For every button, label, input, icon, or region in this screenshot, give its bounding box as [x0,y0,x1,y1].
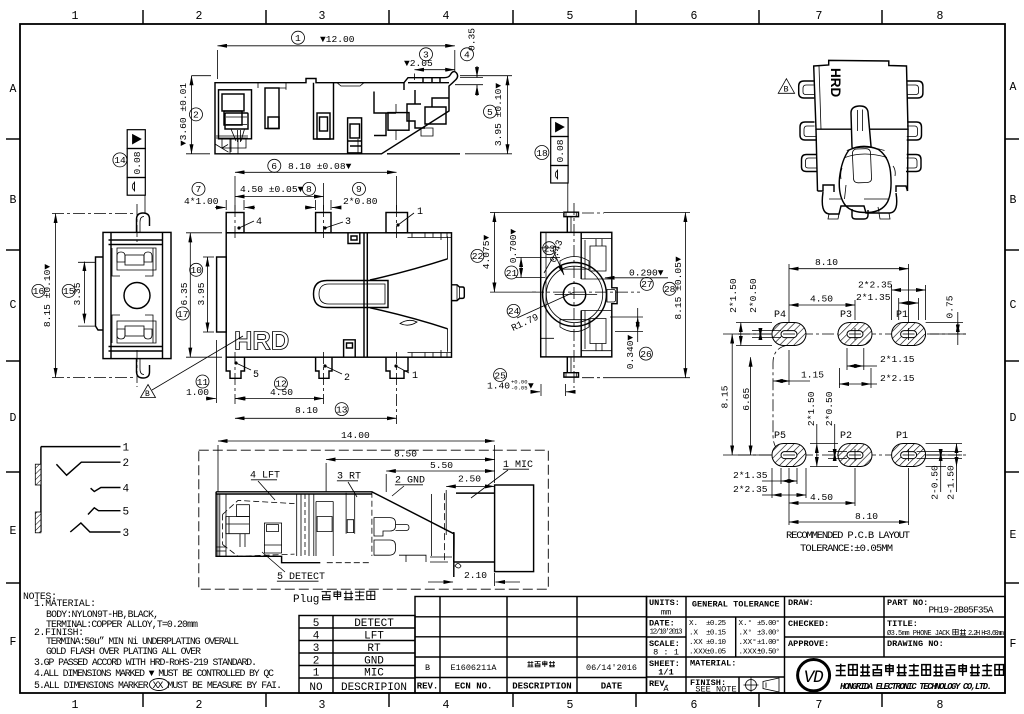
svg-text:TITLE:: TITLE: [887,619,918,629]
svg-text:1.15: 1.15 [801,370,824,381]
svg-text:0.700▼: 0.700▼ [508,228,519,263]
svg-text:17: 17 [177,309,189,320]
svg-text:8: 8 [937,10,944,23]
svg-text:APPROVE:: APPROVE: [788,639,829,649]
svg-text:±0.10: ±0.10 [706,639,726,647]
svg-text:DRAWING NO:: DRAWING NO: [887,639,944,649]
svg-text:LFT: LFT [364,630,384,642]
svg-text:E: E [10,525,17,538]
svg-text:2*0.80: 2*0.80 [343,196,378,207]
svg-text:8.50: 8.50 [394,449,417,460]
svg-text:5: 5 [253,370,259,381]
svg-text:5.ALL DIMENSIONS MARKER XX M: 5.ALL DIMENSIONS MARKER XX MUST BE MEASU… [34,680,282,691]
svg-text:▼2.05: ▼2.05 [404,58,433,69]
svg-text:8.15: 8.15 [720,385,731,408]
svg-text:0.75: 0.75 [945,295,956,318]
svg-text:.X°: .X° [739,629,753,638]
svg-text:mm: mm [661,608,671,618]
svg-text:1: 1 [417,207,423,218]
svg-text:1: 1 [295,33,301,44]
svg-text:Plug: Plug [293,594,319,606]
svg-text:▼3.60 ±0.01: ▼3.60 ±0.01 [178,83,189,147]
svg-text:A: A [1010,81,1017,94]
svg-text:UNITS:: UNITS: [649,598,680,608]
svg-text:P3: P3 [840,310,852,321]
svg-text:2: 2 [196,699,203,712]
svg-text:MIC: MIC [364,667,384,679]
svg-text:4: 4 [256,217,262,228]
svg-text:0.08: 0.08 [132,151,143,174]
svg-text:±1.00°: ±1.00° [757,638,780,647]
svg-text:2*0.50: 2*0.50 [824,391,835,426]
svg-text:B: B [10,194,17,207]
svg-text:14: 14 [114,155,126,166]
svg-text:5.50: 5.50 [430,460,453,471]
svg-text:±5.00°: ±5.00° [757,619,780,628]
svg-text:VD: VD [804,668,824,688]
svg-text:P5: P5 [774,431,786,442]
svg-text:8.10 ±0.08▼: 8.10 ±0.08▼ [288,161,352,172]
svg-text:0.340▼: 0.340▼ [625,334,636,369]
svg-text:18: 18 [536,148,548,159]
svg-text:P1: P1 [896,310,908,321]
svg-text:2*0.50: 2*0.50 [748,278,759,313]
svg-text:4.50: 4.50 [810,492,833,503]
svg-text:2: 2 [196,10,203,23]
svg-text:3: 3 [123,528,130,540]
svg-text:DATE:: DATE: [649,619,675,629]
svg-text:2.2H H=3.60mm: 2.2H H=3.60mm [968,630,1004,638]
svg-text:Ø3.5mm PHONE JACK: Ø3.5mm PHONE JACK [887,629,951,638]
svg-text:±0.25: ±0.25 [706,620,726,628]
svg-text:24: 24 [508,306,520,317]
svg-text:26: 26 [640,349,652,360]
svg-text:DRAW:: DRAW: [788,598,814,608]
svg-text:1: 1 [313,667,320,679]
svg-text:D: D [10,412,17,425]
svg-text:2.10: 2.10 [464,570,487,581]
svg-text:1: 1 [72,10,79,23]
svg-text:8.15 ±0.05▼: 8.15 ±0.05▼ [673,256,684,320]
svg-text:7: 7 [816,10,823,23]
svg-text:3.GP PASSED ACCORD WITH HRD-Ro: 3.GP PASSED ACCORD WITH HRD-RoHS-219 STA… [34,657,257,668]
svg-text:X.: X. [689,620,698,628]
svg-text:X.°: X.° [739,619,753,628]
svg-text:0.08: 0.08 [555,139,566,162]
svg-text:DESCRIPTION: DESCRIPTION [512,682,571,692]
svg-text:4.50 ±0.05▼: 4.50 ±0.05▼ [240,184,304,195]
svg-text:HONGRIDA ELECTRONIC TECHNOLOGY: HONGRIDA ELECTRONIC TECHNOLOGY CO,LTD. [840,682,992,692]
svg-text:-0.05: -0.05 [511,385,528,392]
svg-text:DESCRIPION: DESCRIPION [341,682,407,694]
svg-text:2*1.50: 2*1.50 [728,278,739,313]
svg-text:2-1.50: 2-1.50 [946,465,957,500]
svg-text:1.00: 1.00 [186,387,209,398]
svg-text:DATE: DATE [601,682,623,692]
svg-text:F: F [1010,638,1017,651]
svg-text:B: B [145,390,150,399]
svg-text:2: 2 [313,655,320,667]
svg-text:7: 7 [816,699,823,712]
svg-text:06/14'2016: 06/14'2016 [586,663,637,673]
svg-text:2*1.50: 2*1.50 [806,391,817,426]
svg-text:MATERIAL:: MATERIAL: [690,659,736,669]
svg-text:2*2.35: 2*2.35 [858,280,893,291]
svg-text:▼: ▼ [528,381,534,392]
svg-text:RECOMMENDED P.C.B LAYOUT: RECOMMENDED P.C.B LAYOUT [786,530,910,542]
svg-text:4.50: 4.50 [270,387,293,398]
svg-text:6: 6 [271,161,277,172]
svg-text:2: 2 [193,110,199,121]
svg-text:8.10: 8.10 [855,511,878,522]
svg-text:2-0.50: 2-0.50 [930,465,941,500]
svg-text:5: 5 [123,507,130,519]
svg-text:3.35: 3.35 [72,282,83,305]
svg-text:DETECT: DETECT [354,618,394,630]
svg-text:3.95 ±0.10▼: 3.95 ±0.10▼ [493,83,504,147]
svg-text:6.65: 6.65 [741,387,752,410]
svg-text:±3.00°: ±3.00° [757,629,780,638]
svg-text:C: C [1010,299,1017,312]
svg-text:2*2.35: 2*2.35 [733,484,768,495]
svg-text:0.35: 0.35 [467,28,478,51]
svg-text:1/1: 1/1 [658,668,673,678]
svg-text:±0.15: ±0.15 [706,630,726,638]
svg-text:.X: .X [689,630,699,638]
svg-text:13: 13 [336,404,348,415]
svg-text:5: 5 [567,10,574,23]
svg-text:E: E [1010,529,1017,542]
svg-text:8.15 ±0.10▼: 8.15 ±0.10▼ [42,264,53,328]
svg-text:B: B [1010,194,1017,207]
svg-text:3: 3 [319,10,326,23]
svg-text:2*1.35: 2*1.35 [733,470,768,481]
svg-text:4: 4 [123,484,130,496]
svg-text:9: 9 [356,184,362,195]
svg-text:B: B [425,663,430,673]
svg-text:TOLERANCE:±0.05MM: TOLERANCE:±0.05MM [800,543,893,555]
svg-text:4*1.00: 4*1.00 [184,196,219,207]
svg-text:27: 27 [641,279,653,290]
svg-text:8: 8 [937,699,944,712]
svg-text:6.35: 6.35 [179,282,190,305]
svg-text:4.075▼: 4.075▼ [481,234,492,269]
svg-text:8 : 1: 8 : 1 [653,648,679,658]
svg-text:2*1.35: 2*1.35 [856,292,891,303]
svg-text:4: 4 [313,630,320,642]
svg-text:21: 21 [506,268,518,279]
svg-text:GENERAL TOLERANCE: GENERAL TOLERANCE [692,600,780,610]
svg-text:14.00: 14.00 [341,430,370,441]
svg-text:▼12.00: ▼12.00 [320,34,355,45]
svg-text:HRD: HRD [234,328,289,356]
svg-text:.XXX: .XXX [689,649,708,657]
svg-text:5: 5 [313,618,320,630]
svg-text:2: 2 [123,458,130,470]
svg-text:6: 6 [691,699,698,712]
svg-text:P2: P2 [840,431,852,442]
svg-text:PART NO:: PART NO: [887,598,928,608]
svg-text:4.ALL DIMENSIONS MARKED ▼ MUST: 4.ALL DIMENSIONS MARKED ▼ MUST BE CONTRO… [34,668,274,679]
svg-text:4: 4 [443,699,450,712]
svg-text:1.40: 1.40 [487,381,510,392]
svg-text:8.10: 8.10 [815,257,838,268]
svg-text:1: 1 [412,371,418,382]
svg-text:B: B [784,85,789,95]
svg-text:10: 10 [191,265,203,276]
svg-text:ECN NO.: ECN NO. [455,682,493,692]
svg-text:P4: P4 [774,310,786,321]
svg-text:1.MATERIAL:: 1.MATERIAL: [34,598,96,609]
svg-text:SEE NOTE: SEE NOTE [695,685,736,695]
svg-text:D: D [1010,412,1017,425]
svg-text:7: 7 [196,184,202,195]
svg-text:3: 3 [313,643,320,655]
svg-text:1: 1 [72,699,79,712]
svg-text:GOLD FLASH OVER PLATING ALL OV: GOLD FLASH OVER PLATING ALL OVER [46,646,201,657]
svg-text:3: 3 [345,217,351,228]
svg-text:CHECKED:: CHECKED: [788,619,829,629]
svg-text:±0.50°: ±0.50° [757,648,780,657]
svg-text:NO: NO [309,682,323,694]
svg-text:12/10'2013: 12/10'2013 [650,629,683,637]
svg-text:GND: GND [364,655,384,667]
svg-text:8.10: 8.10 [295,405,318,416]
svg-text:1: 1 [123,443,130,455]
svg-text:A: A [663,684,669,694]
svg-text:2*2.15: 2*2.15 [880,373,915,384]
svg-text:3.95: 3.95 [196,282,207,305]
svg-text:.XX°: .XX° [739,638,757,647]
svg-text:F: F [10,636,17,649]
svg-text:5: 5 [567,699,574,712]
svg-text:2*1.15: 2*1.15 [880,354,915,365]
svg-text:RT: RT [367,643,381,655]
svg-text:HRD: HRD [828,68,843,97]
svg-text:±0.05: ±0.05 [706,649,726,657]
svg-text:4.50: 4.50 [810,294,833,305]
svg-text:0.290▼: 0.290▼ [629,268,664,279]
svg-text:2.50: 2.50 [458,474,481,485]
svg-text:P1: P1 [896,431,908,442]
svg-text:E1606211A: E1606211A [451,663,498,673]
svg-text:.XX: .XX [689,639,703,647]
svg-text:PH19-2B05F35A: PH19-2B05F35A [929,605,994,616]
svg-text:8: 8 [306,184,312,195]
svg-text:A: A [10,83,17,96]
svg-text:C: C [10,299,17,312]
svg-text:3: 3 [319,699,326,712]
svg-text:4: 4 [443,10,450,23]
svg-text:2: 2 [344,373,350,384]
svg-text:REV.: REV. [417,682,439,692]
svg-text:6: 6 [691,10,698,23]
